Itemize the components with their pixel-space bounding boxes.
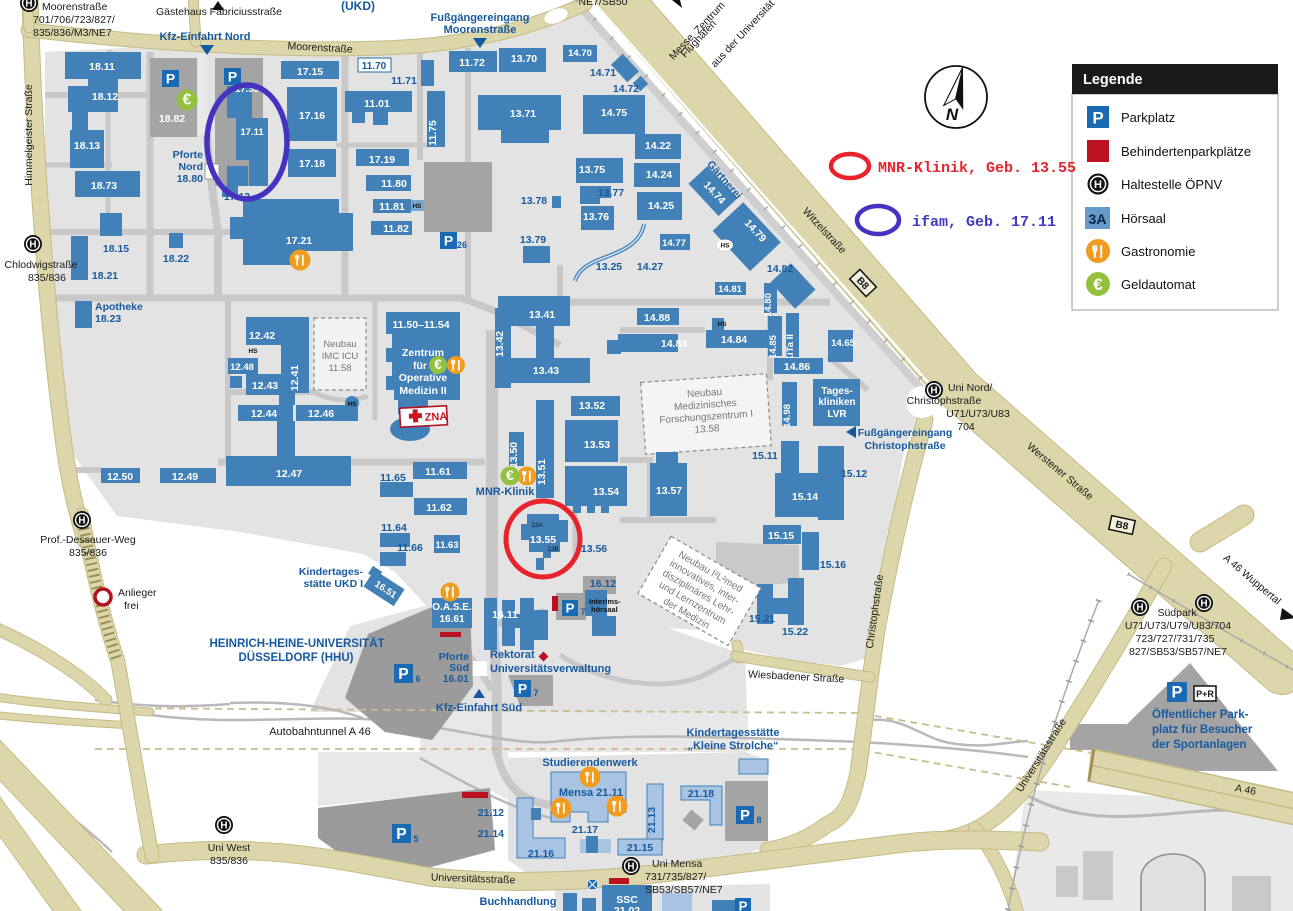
svg-text:P: P xyxy=(518,680,527,696)
svg-text:14.22: 14.22 xyxy=(645,140,671,152)
svg-text:17.21: 17.21 xyxy=(286,235,312,247)
svg-text:Chlodwigstraße: Chlodwigstraße xyxy=(5,259,78,271)
svg-text:13.53: 13.53 xyxy=(584,439,610,451)
svg-text:Neubau: Neubau xyxy=(323,339,356,350)
svg-text:Kindertages-: Kindertages- xyxy=(299,566,364,578)
svg-text:3A: 3A xyxy=(1089,211,1107,227)
svg-text:835/836: 835/836 xyxy=(69,547,107,559)
svg-text:H: H xyxy=(78,515,85,526)
svg-text:P: P xyxy=(166,70,175,86)
svg-text:12.46: 12.46 xyxy=(308,408,334,420)
svg-text:11.58: 11.58 xyxy=(328,363,351,374)
svg-text:14.98: 14.98 xyxy=(782,404,793,428)
svg-text:15.21: 15.21 xyxy=(749,613,775,625)
svg-text:P: P xyxy=(228,68,237,84)
svg-text:Südpark: Südpark xyxy=(1157,607,1197,619)
svg-text:15.11: 15.11 xyxy=(752,450,778,462)
svg-text:14.80: 14.80 xyxy=(763,293,774,317)
svg-text:Tages-: Tages- xyxy=(821,386,853,397)
svg-text:17.11: 17.11 xyxy=(240,127,264,138)
svg-text:„Kleine Strolche“: „Kleine Strolche“ xyxy=(687,740,778,752)
svg-text:14.25: 14.25 xyxy=(648,200,674,212)
svg-text:14.75: 14.75 xyxy=(601,107,627,119)
svg-text:€: € xyxy=(183,91,192,108)
svg-text:HS: HS xyxy=(347,401,357,408)
svg-text:DÜSSELDORF (HHU): DÜSSELDORF (HHU) xyxy=(239,651,354,664)
svg-text:P: P xyxy=(396,826,406,843)
svg-text:Buchhandlung: Buchhandlung xyxy=(480,896,557,908)
svg-text:15.16: 15.16 xyxy=(820,559,846,571)
svg-text:(UKD): (UKD) xyxy=(341,0,375,13)
svg-text:11.50–11.54: 11.50–11.54 xyxy=(392,319,449,331)
svg-text:21.12: 21.12 xyxy=(478,807,504,819)
svg-text:Legende: Legende xyxy=(1083,72,1143,88)
svg-text:Öffentlicher Park-: Öffentlicher Park- xyxy=(1152,708,1249,721)
svg-text:5: 5 xyxy=(413,834,418,844)
svg-text:13.50: 13.50 xyxy=(508,442,520,468)
svg-text:13.56: 13.56 xyxy=(581,543,607,555)
svg-text:14.24: 14.24 xyxy=(646,169,672,181)
svg-text:hörsaal: hörsaal xyxy=(591,605,618,614)
svg-text:Behindertenparkplätze: Behindertenparkplätze xyxy=(1121,144,1251,159)
svg-text:Uni West: Uni West xyxy=(208,842,250,854)
svg-text:13.25: 13.25 xyxy=(596,261,622,273)
svg-text:Pforte: Pforte xyxy=(173,149,203,161)
svg-text:13.41: 13.41 xyxy=(529,309,555,321)
svg-text:14.77: 14.77 xyxy=(662,238,686,249)
svg-text:21.02: 21.02 xyxy=(614,905,640,911)
svg-text:Kindertagesstätte: Kindertagesstätte xyxy=(687,727,780,739)
svg-text:704: 704 xyxy=(957,421,975,433)
svg-text:11.82: 11.82 xyxy=(383,223,409,235)
svg-text:Moorenstraße: Moorenstraße xyxy=(42,1,108,13)
svg-text:13.52: 13.52 xyxy=(579,400,605,412)
svg-text:14.84: 14.84 xyxy=(721,334,747,346)
svg-text:13.75: 13.75 xyxy=(579,164,605,176)
svg-text:14.83: 14.83 xyxy=(661,338,687,350)
svg-text:H: H xyxy=(627,861,634,872)
svg-text:€: € xyxy=(434,357,442,372)
svg-text:für: für xyxy=(413,360,427,372)
svg-text:14.86: 14.86 xyxy=(784,361,810,373)
svg-text:13.58: 13.58 xyxy=(694,423,720,436)
svg-text:HS: HS xyxy=(720,243,730,250)
svg-text:16.12: 16.12 xyxy=(590,578,616,590)
svg-text:13.57: 13.57 xyxy=(656,485,682,497)
svg-text:Geldautomat: Geldautomat xyxy=(1121,277,1196,292)
svg-text:Haltestelle ÖPNV: Haltestelle ÖPNV xyxy=(1121,177,1222,192)
svg-text:18.13: 18.13 xyxy=(74,140,100,152)
svg-text:7: 7 xyxy=(580,607,585,617)
svg-text:Fußgängereingang: Fußgängereingang xyxy=(858,427,953,439)
svg-text:21.15: 21.15 xyxy=(627,842,653,854)
svg-text:€: € xyxy=(506,468,514,484)
svg-text:21.17: 21.17 xyxy=(572,824,598,836)
svg-text:11.72: 11.72 xyxy=(459,57,485,69)
svg-text:17.18: 17.18 xyxy=(299,158,325,170)
svg-text:kliniken: kliniken xyxy=(818,397,855,408)
svg-text:11.71: 11.71 xyxy=(391,75,417,87)
svg-text:H: H xyxy=(1200,598,1207,609)
svg-text:835/836/M3/NE7: 835/836/M3/NE7 xyxy=(33,27,112,39)
svg-text:14.88: 14.88 xyxy=(644,312,670,324)
svg-text:P: P xyxy=(740,808,750,824)
svg-text:Prof.-Dessauer-Weg: Prof.-Dessauer-Weg xyxy=(40,534,136,546)
svg-text:KiTa II: KiTa II xyxy=(785,334,796,362)
svg-text:P: P xyxy=(739,898,748,911)
svg-text:14.85: 14.85 xyxy=(768,334,779,358)
svg-text:18.21: 18.21 xyxy=(92,270,118,282)
svg-text:MNR-Klinik: MNR-Klinik xyxy=(476,486,536,498)
svg-text:U71/U73/U83: U71/U73/U83 xyxy=(946,408,1010,420)
svg-text:Fußgängereingang: Fußgängereingang xyxy=(431,12,530,24)
svg-text:Christophstraße: Christophstraße xyxy=(864,440,945,452)
svg-text:11.01: 11.01 xyxy=(364,98,390,110)
svg-text:Medizin II: Medizin II xyxy=(399,385,446,397)
svg-text:U71/U73/U79/U83/704: U71/U73/U79/U83/704 xyxy=(1125,620,1231,632)
svg-text:21.14: 21.14 xyxy=(478,828,504,840)
svg-text:15.15: 15.15 xyxy=(768,530,794,542)
svg-text:17.19: 17.19 xyxy=(369,154,395,166)
svg-text:701/706/723/827/: 701/706/723/827/ xyxy=(33,14,115,26)
svg-text:Kfz-Einfahrt Süd: Kfz-Einfahrt Süd xyxy=(436,702,522,714)
svg-text:SB53/SB57/NE7: SB53/SB57/NE7 xyxy=(645,884,723,896)
svg-text:Gastronomie: Gastronomie xyxy=(1121,244,1195,259)
svg-text:18.22: 18.22 xyxy=(163,253,189,265)
svg-text:12.42: 12.42 xyxy=(249,330,275,342)
svg-text:P: P xyxy=(1092,109,1103,128)
svg-text:Nord: Nord xyxy=(179,161,204,173)
svg-text:16.61: 16.61 xyxy=(439,614,464,625)
svg-text:Christophstraße: Christophstraße xyxy=(907,395,982,407)
svg-text:15.12: 15.12 xyxy=(841,468,867,480)
svg-text:14.72: 14.72 xyxy=(613,83,639,95)
svg-text:P: P xyxy=(398,666,408,683)
svg-text:12.41: 12.41 xyxy=(289,365,301,391)
svg-text:8: 8 xyxy=(756,815,761,825)
svg-text:HS: HS xyxy=(412,203,422,210)
svg-text:17.16: 17.16 xyxy=(299,110,325,122)
svg-text:18.80: 18.80 xyxy=(177,173,203,185)
svg-text:11.62: 11.62 xyxy=(426,502,452,514)
svg-text:18.12: 18.12 xyxy=(92,91,118,103)
svg-text:P: P xyxy=(1172,684,1183,702)
svg-text:11.61: 11.61 xyxy=(425,466,451,478)
svg-text:835/836: 835/836 xyxy=(210,855,248,867)
svg-text:11.81: 11.81 xyxy=(379,201,405,213)
svg-text:Moorenstraße: Moorenstraße xyxy=(444,24,517,36)
svg-text:7: 7 xyxy=(533,688,538,698)
svg-text:Hörsaal: Hörsaal xyxy=(1121,211,1166,226)
svg-text:18.15: 18.15 xyxy=(103,243,129,255)
svg-text:Autobahntunnel A 46: Autobahntunnel A 46 xyxy=(269,726,371,738)
svg-text:H: H xyxy=(1094,179,1102,191)
svg-text:12.50: 12.50 xyxy=(107,471,133,483)
svg-text:14.81: 14.81 xyxy=(718,284,742,295)
svg-text:11.64: 11.64 xyxy=(381,522,407,534)
svg-text:13.54: 13.54 xyxy=(593,486,619,498)
svg-text:N: N xyxy=(946,105,959,124)
svg-text:H: H xyxy=(29,239,36,250)
svg-text:HEINRICH-HEINE-UNIVERSITÄT: HEINRICH-HEINE-UNIVERSITÄT xyxy=(209,637,384,650)
svg-text:13B: 13B xyxy=(547,546,559,553)
svg-text:12.44: 12.44 xyxy=(251,408,277,420)
svg-text:14.82: 14.82 xyxy=(767,263,793,275)
svg-text:18.73: 18.73 xyxy=(91,180,117,192)
svg-text:15.22: 15.22 xyxy=(782,626,808,638)
svg-text:stätte UKD I: stätte UKD I xyxy=(303,578,363,590)
svg-text:11.80: 11.80 xyxy=(381,178,407,190)
svg-text:Uni Nord/: Uni Nord/ xyxy=(948,382,992,394)
svg-text:723/727/731/735: 723/727/731/735 xyxy=(1136,633,1215,645)
svg-text:Kfz-Einfahrt Nord: Kfz-Einfahrt Nord xyxy=(159,31,250,43)
svg-text:Universitätsverwaltung: Universitätsverwaltung xyxy=(490,663,611,675)
svg-text:12.49: 12.49 xyxy=(172,471,198,483)
svg-text:P+R: P+R xyxy=(1196,689,1214,699)
svg-text:15.14: 15.14 xyxy=(792,491,818,503)
svg-text:6: 6 xyxy=(415,674,420,684)
svg-text:Parkplatz: Parkplatz xyxy=(1121,110,1175,125)
svg-text:18.11: 18.11 xyxy=(89,61,115,73)
svg-text:827/SB53/SB57/NE7: 827/SB53/SB57/NE7 xyxy=(1129,646,1227,658)
svg-text:platz für Besucher: platz für Besucher xyxy=(1152,724,1253,736)
svg-text:Anlieger: Anlieger xyxy=(118,587,157,599)
svg-text:13.79: 13.79 xyxy=(520,234,546,246)
svg-text:LVR: LVR xyxy=(827,409,847,420)
svg-text:14.71: 14.71 xyxy=(590,67,616,79)
svg-text:H: H xyxy=(220,820,227,831)
svg-text:12.48: 12.48 xyxy=(230,362,254,373)
svg-text:Operative: Operative xyxy=(399,372,448,384)
svg-text:ZNA: ZNA xyxy=(424,411,447,424)
svg-text:13.43: 13.43 xyxy=(533,365,559,377)
svg-text:26: 26 xyxy=(457,240,467,250)
svg-text:18.23: 18.23 xyxy=(95,313,121,325)
svg-text:O.A.S.E.: O.A.S.E. xyxy=(432,602,472,613)
svg-text:13.71: 13.71 xyxy=(510,108,536,120)
svg-text:P: P xyxy=(566,600,575,615)
svg-text:16.01: 16.01 xyxy=(443,673,469,685)
svg-text:13.77: 13.77 xyxy=(598,187,624,199)
svg-text:11.75: 11.75 xyxy=(427,120,439,146)
svg-text:€: € xyxy=(1093,275,1103,294)
svg-text:NE7/SB50: NE7/SB50 xyxy=(578,0,627,8)
svg-text:11.70: 11.70 xyxy=(362,61,387,72)
svg-text:13.78: 13.78 xyxy=(521,195,547,207)
svg-text:14.27: 14.27 xyxy=(637,261,663,273)
svg-text:17.15: 17.15 xyxy=(297,66,323,78)
svg-text:21.13: 21.13 xyxy=(646,807,658,833)
svg-text:13.76: 13.76 xyxy=(583,211,609,223)
svg-text:der Sportanlagen: der Sportanlagen xyxy=(1152,739,1247,751)
svg-text:13.51: 13.51 xyxy=(536,459,548,485)
svg-text:21.18: 21.18 xyxy=(688,788,714,800)
svg-text:H: H xyxy=(1136,602,1143,613)
svg-text:HS: HS xyxy=(248,348,258,355)
svg-text:13.70: 13.70 xyxy=(511,53,537,65)
svg-text:14.65: 14.65 xyxy=(831,338,855,349)
svg-text:ifam, Geb. 17.11: ifam, Geb. 17.11 xyxy=(912,214,1056,231)
svg-text:11.63: 11.63 xyxy=(435,540,458,551)
svg-text:frei: frei xyxy=(124,600,139,612)
svg-text:731/735/827/: 731/735/827/ xyxy=(645,871,706,883)
svg-text:18.82: 18.82 xyxy=(159,113,185,125)
svg-text:Rektorat: Rektorat xyxy=(490,649,535,661)
svg-text:Apotheke: Apotheke xyxy=(95,301,143,313)
svg-text:P: P xyxy=(444,232,453,248)
svg-text:13.42: 13.42 xyxy=(494,331,506,357)
svg-text:16.11: 16.11 xyxy=(492,609,518,621)
svg-text:14.70: 14.70 xyxy=(568,48,592,59)
svg-text:835/836: 835/836 xyxy=(28,272,66,284)
svg-text:13A: 13A xyxy=(531,522,543,529)
svg-text:21.16: 21.16 xyxy=(528,848,554,860)
svg-text:Himmelgeister Straße: Himmelgeister Straße xyxy=(23,84,35,186)
svg-text:IMC ICU: IMC ICU xyxy=(322,351,359,362)
svg-text:Uni Mensa: Uni Mensa xyxy=(652,858,702,870)
svg-text:12.43: 12.43 xyxy=(252,380,278,392)
svg-text:H: H xyxy=(25,0,32,9)
svg-text:MNR-Klinik, Geb. 13.55: MNR-Klinik, Geb. 13.55 xyxy=(878,160,1076,177)
svg-text:HS: HS xyxy=(717,321,727,328)
svg-text:12.47: 12.47 xyxy=(276,468,302,480)
svg-text:13.55: 13.55 xyxy=(530,534,556,546)
